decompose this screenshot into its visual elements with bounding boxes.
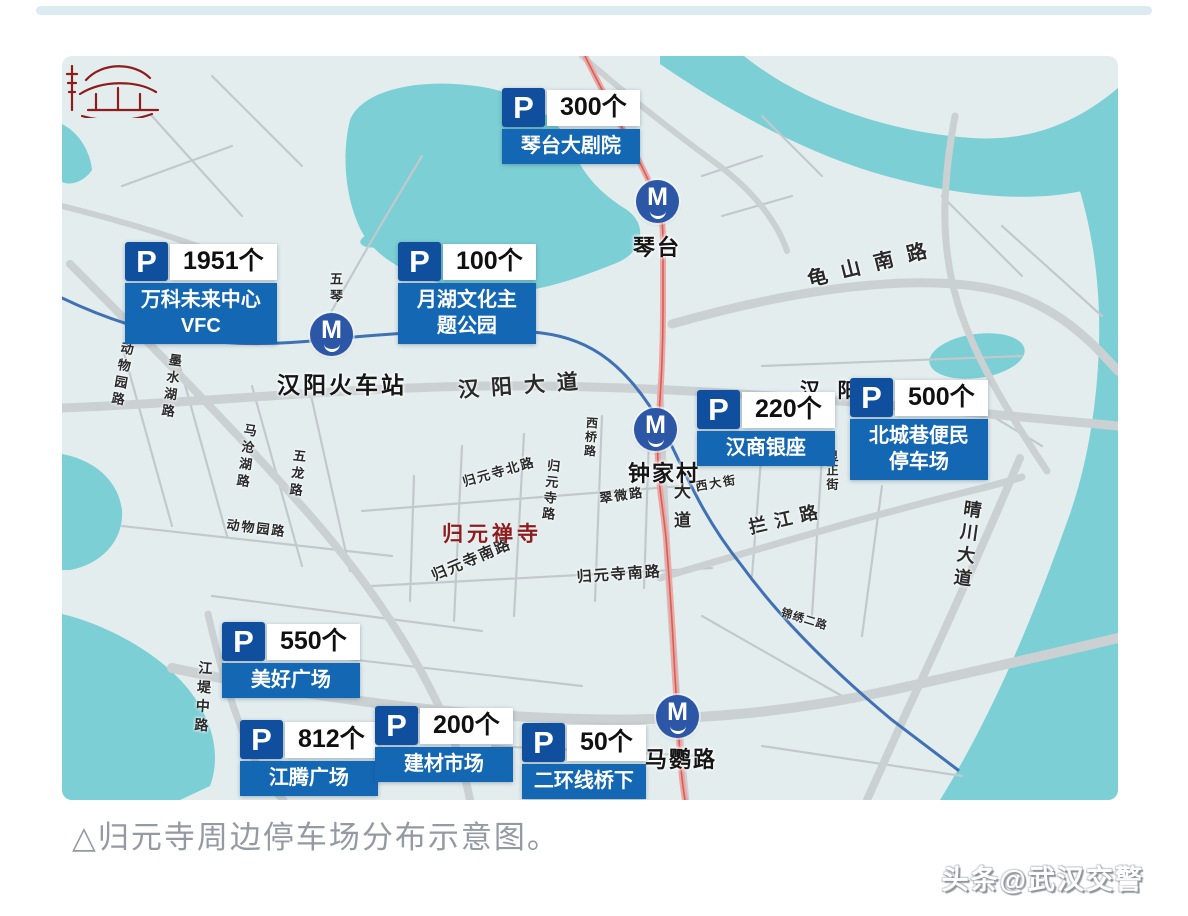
parking-count-row: P 50个: [522, 723, 646, 762]
metro-station-icon-mayinglu: M: [656, 695, 699, 738]
metro-logo-arc: [650, 211, 666, 219]
toutiao-watermark: 头条@武汉交警: [942, 858, 1144, 897]
parking-name-line1: 二环线桥下: [533, 768, 635, 794]
road-label-dadao: 大道: [668, 482, 693, 540]
metro-logo-arc: [648, 439, 664, 447]
parking-count: 100个: [443, 244, 536, 280]
parking-icon: P: [240, 720, 283, 759]
road-guishan-south: [672, 283, 1118, 371]
metro-station-icon-qintai: M: [636, 180, 679, 223]
map: 汉阳大道 龟山南路 拦江路 晴川大道 归元寺南路 归元寺南路 翠微路 归元寺路 …: [62, 56, 1118, 800]
parking-count-row: P 220个: [697, 390, 835, 429]
parking-count-row: P 100个: [398, 242, 536, 281]
parking-icon: P: [502, 88, 545, 127]
parking-count-row: P 300个: [502, 88, 640, 127]
minor-road: [322, 656, 582, 686]
parking-name: 建材市场: [375, 747, 513, 782]
parking-name-line1: 汉商银座: [708, 435, 824, 461]
parking-name-line1: 月湖文化主: [409, 287, 525, 313]
parking-name: 月湖文化主 题公园: [398, 283, 536, 344]
parking-count: 300个: [547, 90, 640, 126]
guiyuan-temple-drawing: [62, 56, 166, 118]
parking-icon: P: [850, 378, 893, 417]
parking-name: 汉商银座: [697, 431, 835, 466]
parking-count-row: P 500个: [850, 378, 988, 417]
parking-icon: P: [375, 706, 418, 745]
figure-caption: △归元寺周边停车场分布示意图。: [72, 812, 560, 857]
parking-icon: P: [522, 723, 565, 762]
parking-count-row: P 1951个: [125, 242, 277, 281]
minor-road: [862, 486, 882, 636]
metro-logo-icon: M: [645, 413, 666, 438]
parking-name: 江腾广场: [240, 761, 378, 796]
minor-road: [942, 196, 1022, 276]
parking-name-line1: 美好广场: [233, 667, 349, 693]
parking-count-row: P 812个: [240, 720, 378, 759]
page: 汉阳大道 龟山南路 拦江路 晴川大道 归元寺南路 归元寺南路 翠微路 归元寺路 …: [0, 0, 1188, 916]
water-lake-midleft: [62, 454, 122, 570]
parking-marker-yuehu-culture-park: P 100个 月湖文化主 题公园: [398, 242, 536, 344]
place-label-hanyang-railway-station: 汉阳火车站: [277, 366, 407, 400]
parking-name-line1: 万科未来中心: [136, 287, 266, 313]
parking-name: 北城巷便民 停车场: [850, 419, 988, 480]
parking-icon: P: [697, 390, 740, 429]
parking-count-row: P 200个: [375, 706, 513, 745]
minor-road: [212, 76, 302, 166]
parking-count: 200个: [420, 708, 513, 744]
metro-station-label-zhongjiacun: 钟家村: [628, 456, 700, 488]
metro-station-icon-hanyang-railway: M: [310, 313, 353, 356]
metro-logo-arc: [670, 726, 686, 734]
minor-road: [410, 476, 414, 601]
parking-marker-qintai-theatre: P 300个 琴台大剧院: [502, 88, 640, 164]
parking-count-row: P 550个: [222, 622, 360, 661]
parking-name-line2: 题公园: [409, 313, 525, 339]
parking-marker-jiancai-market: P 200个 建材市场: [375, 706, 513, 782]
metro-logo-icon: M: [667, 700, 688, 725]
parking-icon: P: [125, 242, 168, 281]
parking-marker-jiangteng-plaza: P 812个 江腾广场: [240, 720, 378, 796]
metro-logo-icon: M: [321, 318, 342, 343]
guiyuan-temple-name: 归元禅寺: [442, 518, 542, 548]
parking-icon: P: [222, 622, 265, 661]
top-divider: [36, 6, 1152, 15]
parking-name-line1: 琴台大剧院: [513, 133, 629, 159]
parking-name: 二环线桥下: [522, 764, 646, 799]
road-label-wuqin-lu: 五琴: [326, 272, 345, 306]
parking-name: 万科未来中心 VFC: [125, 283, 277, 344]
parking-marker-erhuanxian-bridge: P 50个 二环线桥下: [522, 723, 646, 799]
metro-station-label-mayinglu: 马鹦路: [645, 742, 717, 774]
parking-name-line1: 建材市场: [386, 751, 502, 777]
parking-marker-beichengxiang: P 500个 北城巷便民 停车场: [850, 378, 988, 480]
metro-station-icon-zhongjiacun: M: [634, 408, 677, 451]
parking-name-line2: 停车场: [861, 449, 977, 475]
metro-logo-icon: M: [647, 185, 668, 210]
minor-road: [152, 116, 242, 216]
parking-count: 550个: [267, 624, 360, 660]
parking-count: 50个: [567, 725, 646, 761]
minor-road: [122, 146, 232, 186]
parking-name-line1: 江腾广场: [251, 765, 367, 791]
parking-marker-meihao-plaza: P 550个 美好广场: [222, 622, 360, 698]
metro-station-label-qintai: 琴台: [633, 230, 681, 262]
parking-name-line1: 北城巷便民: [861, 423, 977, 449]
parking-count: 812个: [285, 722, 378, 758]
parking-count: 500个: [895, 380, 988, 416]
water-lake-topleft: [62, 124, 92, 184]
parking-icon: P: [398, 242, 441, 281]
parking-name-line2: VFC: [136, 313, 266, 339]
parking-marker-vanke-future-center: P 1951个 万科未来中心 VFC: [125, 242, 277, 344]
parking-count: 1951个: [170, 244, 277, 280]
parking-name: 美好广场: [222, 663, 360, 698]
parking-marker-hanshang-yinzuo: P 220个 汉商银座: [697, 390, 835, 466]
metro-logo-arc: [324, 344, 340, 352]
parking-count: 220个: [742, 392, 835, 428]
road-label-xiqiao-lu: 西桥路: [581, 416, 601, 459]
parking-name: 琴台大剧院: [502, 129, 640, 164]
